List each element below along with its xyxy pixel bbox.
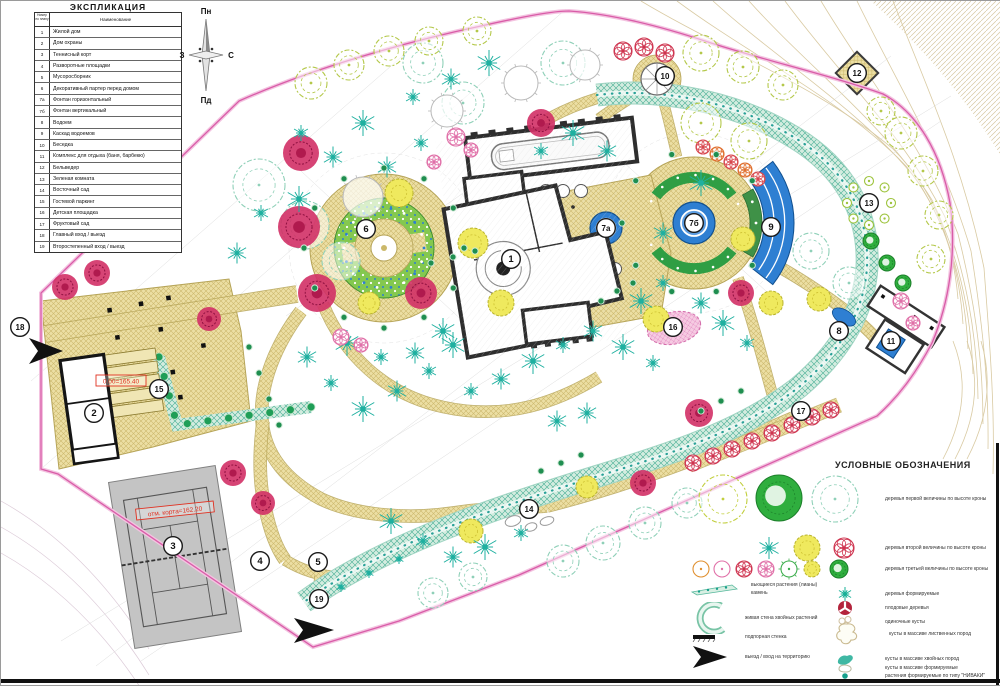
- table-row: 6Декоративный партер перед домом: [35, 83, 181, 94]
- table-row: 4Разворотные площадки: [35, 61, 181, 72]
- row-name: Теннисный корт: [50, 52, 181, 58]
- table-row: 3Теннисный корт: [35, 50, 181, 61]
- row-name: Второстепенный вход / выезд: [50, 244, 181, 250]
- row-name: Зеленая комната: [50, 176, 181, 182]
- table-row: 13Зеленая комната: [35, 174, 181, 185]
- compass-west-label: З: [179, 51, 184, 60]
- explication-table: ЭКСПЛИКАЦИЯ Номер по плану Наименование …: [34, 2, 182, 253]
- svg-text:15: 15: [155, 385, 164, 394]
- table-row: 17Фруктовый сад: [35, 219, 181, 230]
- table-row: 11Комплекс для отдыха (баня, барбекю): [35, 151, 181, 162]
- svg-text:10: 10: [661, 72, 670, 81]
- legend: УСЛОВНЫЕ ОБОЗНАЧЕНИЯ деревья первой вели…: [689, 456, 1000, 685]
- trees-size-3-icon: [691, 558, 863, 580]
- table-row: 8Водоем: [35, 117, 181, 128]
- row-name: Главный вход / выезд: [50, 232, 181, 238]
- table-row: 15Гостевой паркинг: [35, 196, 181, 207]
- explication-header: Номер по плану Наименование: [35, 13, 181, 27]
- row-number: 10: [35, 140, 50, 150]
- table-row: 14Восточный сад: [35, 185, 181, 196]
- legend-item-label: кусты в массиве лиственных пород: [889, 631, 971, 637]
- svg-text:3: 3: [170, 541, 175, 552]
- legend-item-trees-size-3: деревья третьей величины по высоте кроны: [691, 558, 988, 580]
- row-number: 16: [35, 208, 50, 218]
- plan-marker-14: 14: [520, 500, 539, 519]
- svg-text:4: 4: [257, 556, 263, 567]
- legend-item-label: подпорная стенка: [745, 634, 787, 640]
- sheet-frame-right: [996, 443, 999, 685]
- svg-text:18: 18: [16, 323, 25, 332]
- legend-item-label: вьющиеся растения (лианы)камень: [751, 582, 817, 597]
- col-name-header: Наименование: [50, 13, 181, 26]
- row-number: 5: [35, 72, 50, 82]
- row-number: 15: [35, 196, 50, 206]
- row-number: 8: [35, 117, 50, 127]
- plan-marker-9: 9: [762, 218, 781, 237]
- retaining-wall-icon: [691, 632, 723, 642]
- plan-marker-17: 17: [792, 402, 811, 421]
- svg-text:7а: 7а: [602, 224, 611, 233]
- plan-marker-2: 2: [85, 404, 104, 423]
- table-row: 18Главный вход / выезд: [35, 230, 181, 241]
- row-number: 17: [35, 219, 50, 229]
- svg-text:2: 2: [91, 408, 96, 419]
- svg-text:0.00=165.40: 0.00=165.40: [103, 379, 140, 386]
- row-number: 4: [35, 61, 50, 71]
- tennis-court: [109, 466, 242, 649]
- row-number: 3: [35, 50, 50, 60]
- row-name: Дом охраны: [50, 40, 181, 46]
- table-row: 5Мусоросборник: [35, 72, 181, 83]
- col-number-header: Номер по плану: [35, 13, 50, 26]
- compass-north-label: Пн: [201, 7, 212, 16]
- legend-item-label: деревья третьей величины по высоте кроны: [885, 566, 988, 572]
- row-number: 6: [35, 83, 50, 93]
- row-name: Фонтан вертикальный: [50, 108, 181, 114]
- legend-item-shrub-mass-deciduous: кусты в массиве лиственных пород: [835, 622, 971, 646]
- table-row: 16Детская площадка: [35, 208, 181, 219]
- row-name: Мусоросборник: [50, 74, 181, 80]
- plan-marker-8: 8: [830, 322, 849, 341]
- svg-text:9: 9: [768, 222, 773, 233]
- row-name: Бельведер: [50, 165, 181, 171]
- plan-marker-6: 6: [357, 220, 376, 239]
- plan-marker-11: 11: [882, 332, 901, 351]
- row-name: Беседка: [50, 142, 181, 148]
- svg-text:1: 1: [508, 254, 514, 265]
- row-number: 7б: [35, 106, 50, 116]
- legend-item-label: плодовые деревья: [885, 605, 929, 611]
- row-number: 1: [35, 27, 50, 37]
- table-row: 10Беседка: [35, 140, 181, 151]
- svg-text:17: 17: [797, 407, 806, 416]
- row-name: Декоративный партер перед домом: [50, 86, 181, 92]
- legend-item-retaining-wall: подпорная стенка: [691, 632, 787, 642]
- plan-marker-16: 16: [664, 318, 683, 337]
- plan-marker-4: 4: [251, 552, 270, 571]
- trees-size-1-icon: [697, 470, 867, 528]
- conifer-wall-icon: [691, 602, 731, 634]
- row-number: 7а: [35, 95, 50, 105]
- site-plan-sheet: 0.00=165.40отм. корта=162.201234567а7б89…: [0, 0, 1000, 686]
- plan-marker-10: 10: [656, 67, 675, 86]
- table-row: 7бФонтан вертикальный: [35, 106, 181, 117]
- row-name: Фруктовый сад: [50, 221, 181, 227]
- legend-item-label: деревья второй величины по высоте кроны: [885, 545, 986, 551]
- row-name: Каскад водоемов: [50, 131, 181, 137]
- row-number: 12: [35, 163, 50, 173]
- legend-item-label: выезд / вход на территорию: [745, 654, 810, 660]
- svg-text:19: 19: [315, 595, 324, 604]
- vines-strip-icon: [691, 583, 739, 596]
- plan-marker-15: 15: [150, 380, 169, 399]
- svg-text:6: 6: [363, 224, 368, 235]
- table-row: 1Жилой дом: [35, 27, 181, 38]
- plan-marker-13: 13: [860, 194, 879, 213]
- table-row: 2Дом охраны: [35, 38, 181, 49]
- plan-marker-7а: 7а: [597, 219, 616, 238]
- row-name: Восточный сад: [50, 187, 181, 193]
- table-row: 12Бельведер: [35, 163, 181, 174]
- svg-text:13: 13: [865, 199, 874, 208]
- elevation-note: 0.00=165.40: [96, 375, 146, 386]
- legend-item-entry-arrow: выезд / вход на территорию: [691, 644, 810, 670]
- plan-marker-5: 5: [309, 553, 328, 572]
- plan-marker-19: 19: [310, 590, 329, 609]
- table-row: 19Второстепенный вход / выезд: [35, 242, 181, 252]
- plan-marker-12: 12: [848, 64, 867, 83]
- row-name: Детская площадка: [50, 210, 181, 216]
- table-row: 7аФонтан горизонтальный: [35, 95, 181, 106]
- row-name: Комплекс для отдыха (баня, барбекю): [50, 153, 181, 159]
- row-name: Жилой дом: [50, 29, 181, 35]
- legend-item-label: деревья первой величины по высоте кроны: [885, 496, 986, 502]
- svg-text:14: 14: [525, 505, 534, 514]
- shrub-mass-deciduous-icon: [835, 622, 861, 646]
- row-number: 9: [35, 129, 50, 139]
- row-name: Фонтан горизонтальный: [50, 97, 181, 103]
- legend-item-trees-size-1: деревья первой величины по высоте кроны: [697, 470, 986, 528]
- legend-item-label: живая стена хвойных растений: [745, 615, 817, 621]
- table-row: 9Каскад водоемов: [35, 129, 181, 140]
- row-number: 11: [35, 151, 50, 161]
- svg-text:12: 12: [853, 69, 862, 78]
- explication-grid: Номер по плану Наименование 1Жилой дом2Д…: [34, 12, 182, 253]
- row-number: 19: [35, 242, 50, 252]
- svg-text:5: 5: [315, 557, 321, 568]
- row-number: 18: [35, 230, 50, 240]
- legend-item-conifer-wall: живая стена хвойных растений: [691, 602, 817, 634]
- compass-rose: Пн Пд З С: [169, 3, 249, 107]
- row-number: 13: [35, 174, 50, 184]
- legend-title: УСЛОВНЫЕ ОБОЗНАЧЕНИЯ: [835, 460, 971, 470]
- svg-text:16: 16: [669, 323, 678, 332]
- svg-text:8: 8: [836, 326, 841, 337]
- plan-marker-18: 18: [11, 318, 30, 337]
- plan-marker-7б: 7б: [685, 214, 704, 233]
- plan-marker-3: 3: [164, 537, 183, 556]
- explication-title: ЭКСПЛИКАЦИЯ: [34, 2, 182, 12]
- compass-south-label: Пд: [201, 96, 212, 105]
- svg-text:7б: 7б: [689, 219, 698, 228]
- sheet-frame-bottom: [1, 679, 1000, 683]
- row-name: Гостевой паркинг: [50, 199, 181, 205]
- row-number: 2: [35, 38, 50, 48]
- compass-east-label: С: [228, 51, 234, 60]
- entry-arrow-icon: [691, 644, 731, 670]
- row-name: Водоем: [50, 120, 181, 126]
- row-name: Разворотные площадки: [50, 63, 181, 69]
- legend-item-label: деревья формируемые: [885, 591, 939, 597]
- plan-marker-1: 1: [502, 250, 521, 269]
- legend-item-vines-strip: вьющиеся растения (лианы)камень: [691, 582, 817, 597]
- row-number: 14: [35, 185, 50, 195]
- svg-text:11: 11: [887, 337, 896, 346]
